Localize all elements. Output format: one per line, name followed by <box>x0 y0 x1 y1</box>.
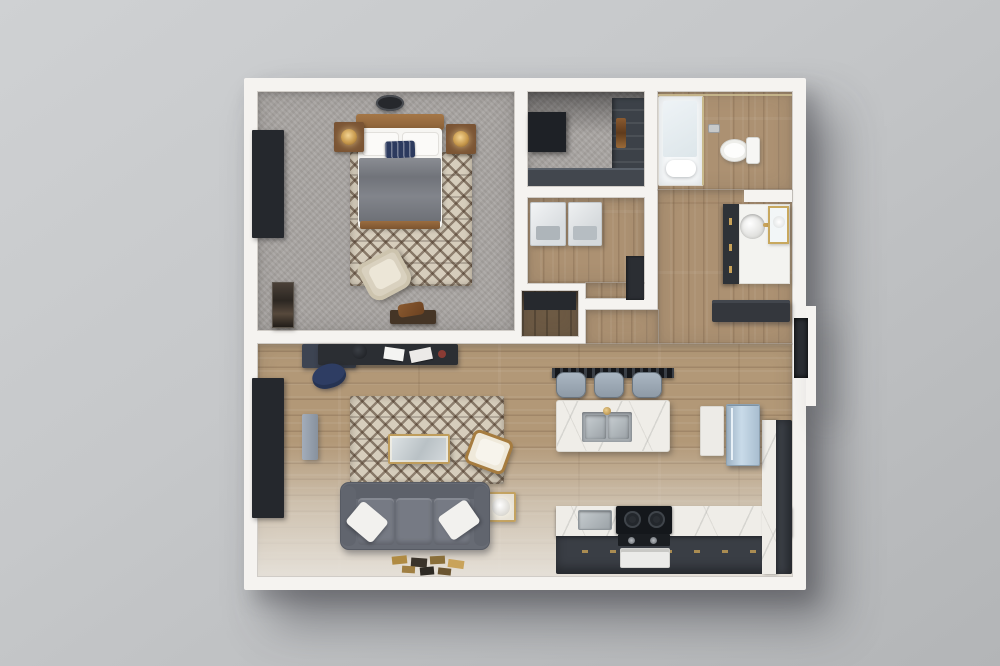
bathroom-ceiling-light <box>708 124 720 133</box>
island-sink-basin-right <box>608 415 629 439</box>
bathroom-vanity-wall-stub <box>744 190 792 202</box>
bed-navy-accent-pillow <box>385 140 416 158</box>
bedroom-ceiling-light <box>376 95 404 111</box>
bed-duvet <box>359 158 441 222</box>
island-faucet <box>603 407 611 415</box>
vanity-cabinet-pull-2 <box>729 244 732 251</box>
floor-plan-render <box>0 0 1000 666</box>
kitchen-counter-right-top <box>762 420 776 574</box>
hallway-strip-floor <box>586 310 658 344</box>
oven-door <box>620 548 670 568</box>
prep-sink <box>578 510 612 530</box>
desk-lamp <box>352 344 367 359</box>
bedroom-window-glass <box>256 134 280 234</box>
dryer-door <box>573 226 597 240</box>
bar-stool-2 <box>594 372 624 398</box>
kitchen-tall-cabinet <box>700 406 724 456</box>
living-window-glass <box>256 382 280 514</box>
vanity-cabinet-pull-1 <box>729 218 732 225</box>
floor-books-6 <box>420 566 435 575</box>
laundry-utility-cabinet <box>626 256 644 300</box>
floor-books-1 <box>392 555 408 565</box>
desk-accent-item <box>438 350 446 358</box>
sofa-back <box>342 484 488 499</box>
closet-wardrobe-unit <box>528 112 566 152</box>
entry-console <box>712 300 790 322</box>
vanity-cabinet-pull-3 <box>729 266 732 273</box>
range-knob-panel <box>618 534 670 546</box>
vanity-sink <box>740 214 765 239</box>
counter-front-pulls <box>560 550 788 553</box>
nightstand-right-lamp <box>453 131 469 147</box>
refrigerator-handle <box>731 408 733 460</box>
floor-books-5 <box>402 566 415 574</box>
washer-door <box>536 226 560 240</box>
pantry-shelf <box>524 292 576 310</box>
bedroom-dresser-art <box>272 282 294 328</box>
closet-hanging-clothes <box>616 118 626 148</box>
range-knob-2 <box>650 537 657 544</box>
range-burner-left <box>624 511 641 528</box>
desk-paper-1 <box>383 347 404 362</box>
wall-panel <box>302 414 318 460</box>
toilet-tank <box>746 137 760 164</box>
bed-foot-rail <box>360 221 440 229</box>
range-burner-right <box>648 511 665 528</box>
island-sink-basin-left <box>585 415 606 439</box>
coffee-table <box>388 434 450 464</box>
vanity-mirror-reflection <box>773 216 785 228</box>
floor-books-3 <box>430 556 445 565</box>
toilet-bowl <box>720 139 749 162</box>
closet-lower-cabinets <box>528 168 644 186</box>
range-knob-1 <box>628 537 635 544</box>
bar-stool-3 <box>632 372 662 398</box>
nightstand-left-lamp <box>341 129 357 145</box>
entry-wall-niche <box>794 318 808 378</box>
shower-pan <box>663 101 697 157</box>
shower-towel <box>666 160 696 177</box>
side-table-lamp <box>492 498 510 516</box>
floor-books-7 <box>438 567 452 575</box>
bar-stool-1 <box>556 372 586 398</box>
sofa-cushion-2 <box>396 498 432 545</box>
